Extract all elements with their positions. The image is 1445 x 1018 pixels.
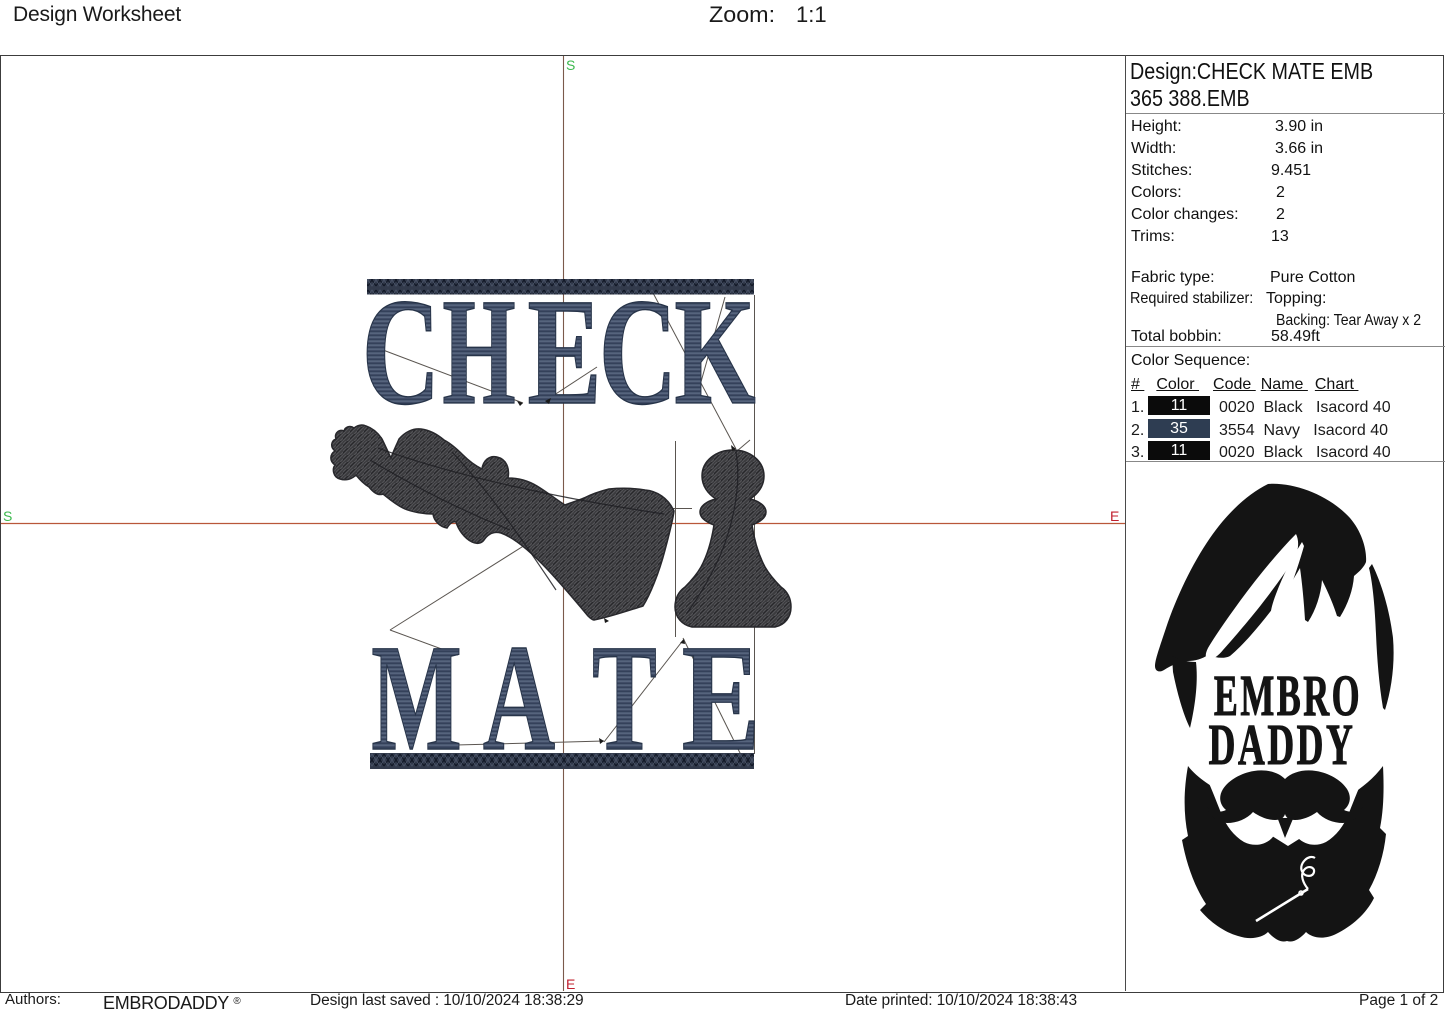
svg-text:H: H — [442, 268, 515, 436]
svg-text:A: A — [483, 613, 555, 782]
svg-text:E: E — [682, 612, 761, 782]
svg-text:K: K — [674, 268, 755, 437]
svg-text:M: M — [371, 612, 462, 782]
svg-text:T: T — [592, 613, 657, 782]
svg-text:C: C — [599, 267, 677, 437]
svg-text:S: S — [566, 57, 575, 73]
svg-text:C: C — [362, 267, 440, 437]
svg-text:S: S — [3, 508, 12, 524]
svg-text:E: E — [566, 976, 575, 992]
svg-text:E: E — [527, 267, 601, 436]
svg-text:E: E — [1110, 508, 1119, 524]
svg-text:DADDY: DADDY — [1209, 713, 1356, 777]
